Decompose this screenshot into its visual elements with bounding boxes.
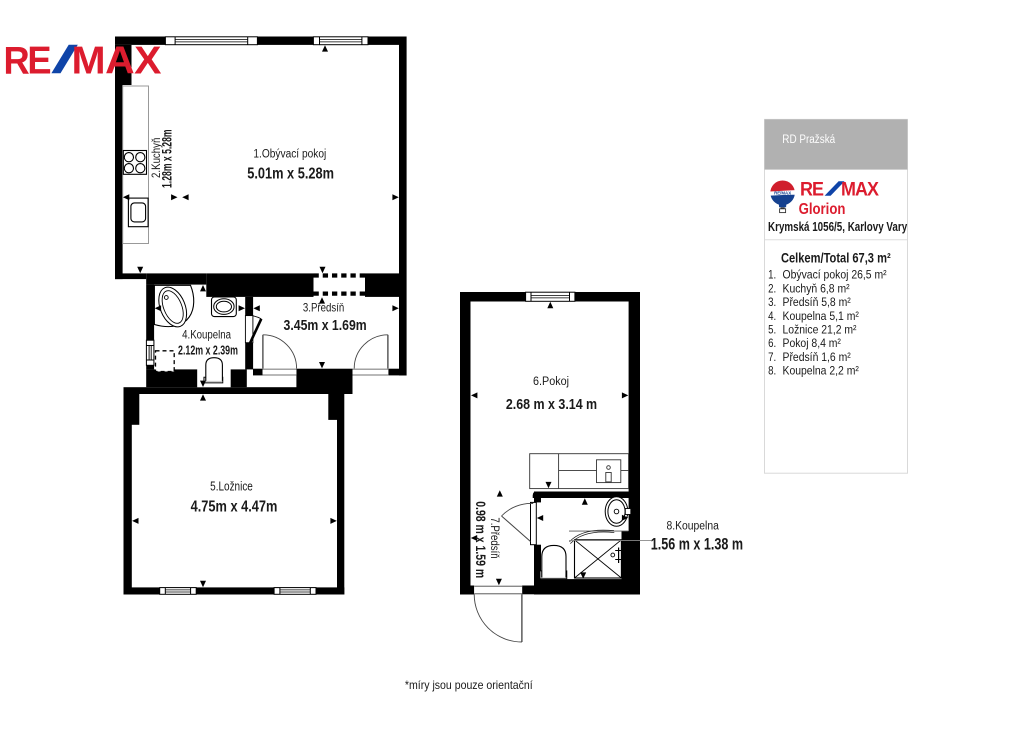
svg-text:Koupelna 5,1 m²: Koupelna 5,1 m² — [783, 310, 860, 323]
svg-text:RE: RE — [4, 38, 51, 81]
svg-text:0.98 m x 1.59 m: 0.98 m x 1.59 m — [473, 501, 489, 578]
svg-text:4.: 4. — [768, 310, 776, 323]
svg-text:*míry jsou pouze orientační: *míry jsou pouze orientační — [405, 680, 534, 693]
svg-text:RD Pražská: RD Pražská — [782, 133, 836, 146]
svg-text:RE: RE — [800, 178, 824, 200]
svg-text:8.Koupelna: 8.Koupelna — [667, 520, 720, 533]
svg-text:Ložnice 21,2 m²: Ložnice 21,2 m² — [783, 324, 857, 337]
svg-text:Kuchyň 6,8 m²: Kuchyň 6,8 m² — [783, 283, 850, 296]
svg-text:Předsíň 5,8 m²: Předsíň 5,8 m² — [783, 296, 851, 309]
svg-text:1.56 m x 1.38 m: 1.56 m x 1.38 m — [651, 535, 743, 554]
svg-text:2.68 m x 3.14 m: 2.68 m x 3.14 m — [506, 396, 597, 412]
svg-text:1.: 1. — [768, 269, 776, 282]
svg-text:5.: 5. — [768, 323, 776, 336]
svg-text:Koupelna 2,2 m²: Koupelna 2,2 m² — [783, 365, 860, 378]
svg-text:RE/MAX: RE/MAX — [774, 191, 791, 196]
svg-text:MAX: MAX — [72, 39, 162, 82]
svg-text:Obývací pokoj 26,5 m²: Obývací pokoj 26,5 m² — [783, 269, 887, 282]
svg-text:MAX: MAX — [841, 178, 879, 200]
svg-text:2.: 2. — [768, 282, 776, 295]
svg-text:7.: 7. — [768, 351, 776, 364]
svg-text:Celkem/Total 67,3 m²: Celkem/Total 67,3 m² — [781, 251, 891, 266]
svg-text:2.12m x 2.39m: 2.12m x 2.39m — [178, 344, 238, 358]
svg-text:5.Ložnice: 5.Ložnice — [210, 480, 253, 493]
svg-text:Pokoj 8,4 m²: Pokoj 8,4 m² — [783, 337, 842, 350]
svg-text:4.Koupelna: 4.Koupelna — [182, 328, 232, 341]
svg-text:3.45m x 1.69m: 3.45m x 1.69m — [284, 317, 367, 333]
svg-text:1.28m x 5.28m: 1.28m x 5.28m — [161, 129, 175, 188]
svg-text:Glorion: Glorion — [799, 201, 846, 218]
svg-text:Krymská 1056/5, Karlovy Vary: Krymská 1056/5, Karlovy Vary — [768, 221, 908, 234]
svg-text:4.75m x 4.47m: 4.75m x 4.47m — [191, 499, 278, 517]
svg-text:3.: 3. — [768, 296, 776, 309]
svg-text:3.Předsíň: 3.Předsíň — [303, 301, 344, 314]
svg-text:1.Obývací pokoj: 1.Obývací pokoj — [253, 148, 326, 161]
svg-text:Předsíň 1,6 m²: Předsíň 1,6 m² — [783, 351, 851, 364]
svg-text:6.Pokoj: 6.Pokoj — [533, 375, 569, 389]
svg-text:6.: 6. — [768, 337, 776, 350]
svg-text:5.01m x 5.28m: 5.01m x 5.28m — [247, 165, 334, 183]
svg-text:8.: 8. — [768, 365, 776, 378]
